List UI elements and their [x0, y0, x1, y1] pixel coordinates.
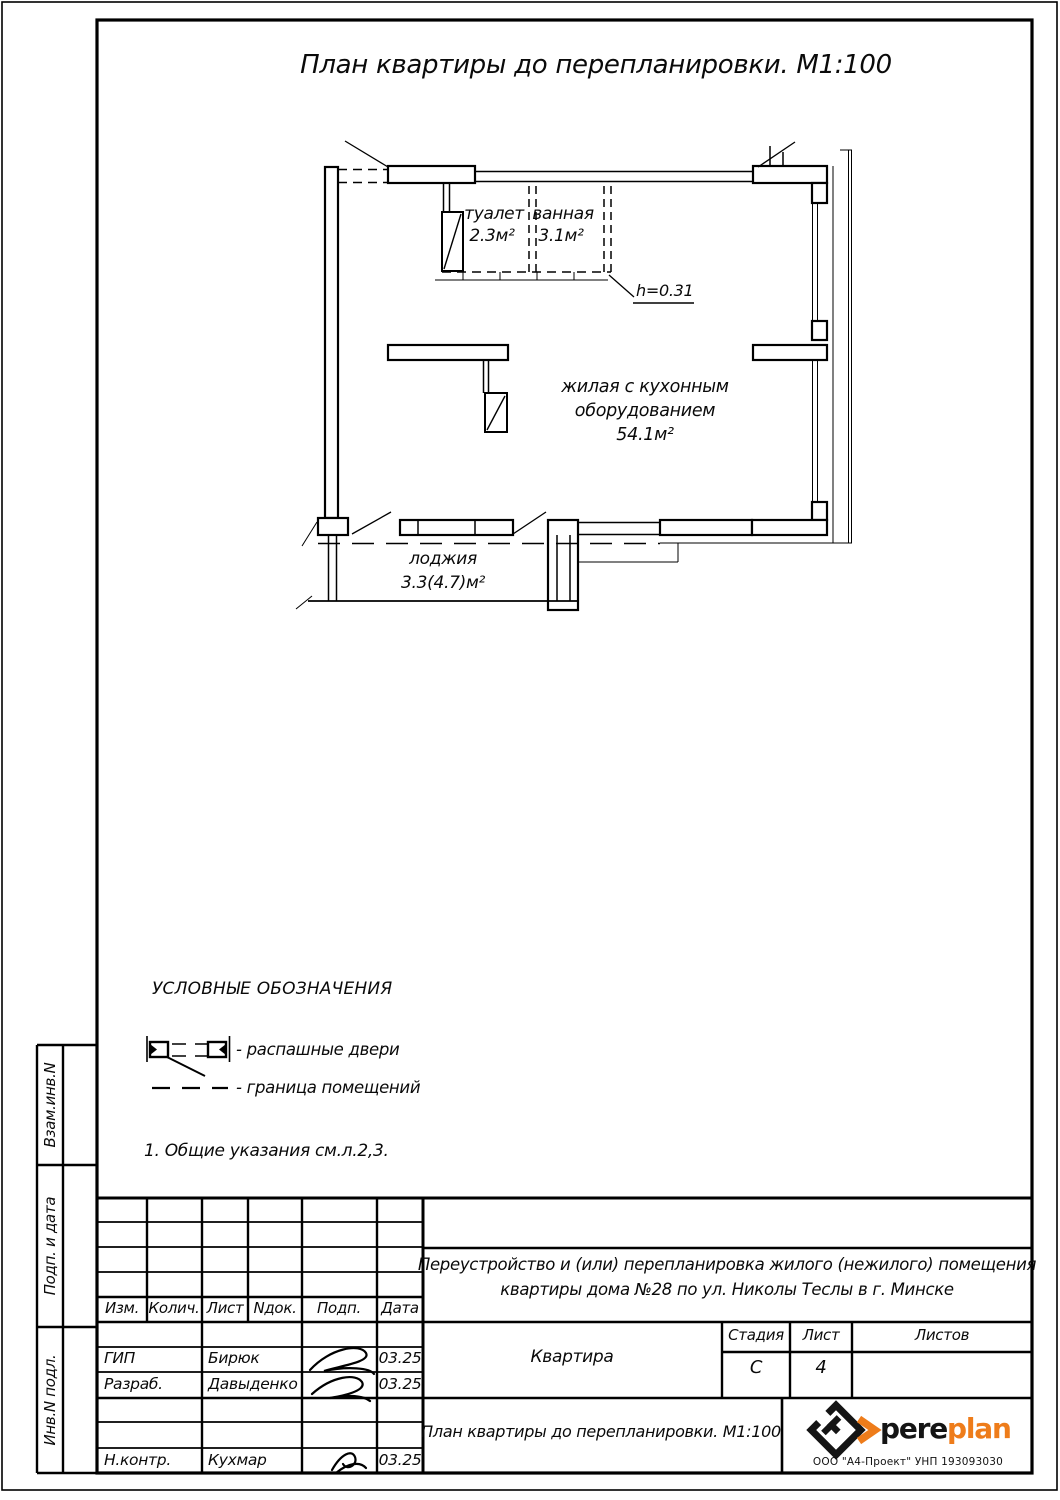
- stage-label: Стадия: [728, 1328, 784, 1344]
- sheet-title: План квартиры до перепланировки. М1:100: [300, 52, 892, 79]
- legend-title: УСЛОВНЫЕ ОБОЗНАЧЕНИЯ: [152, 981, 392, 999]
- drawing-linework: [0, 0, 1060, 1500]
- stage-value: С: [750, 1359, 762, 1378]
- room-label-loggia: лоджия: [409, 551, 477, 569]
- sidebar-label-podp-data: Подп. и дата: [43, 1197, 59, 1296]
- drawing-title: План квартиры до перепланировки. М1:100: [421, 1424, 781, 1441]
- room-area-loggia: 3.3(4.7)м²: [401, 575, 485, 593]
- signature-nkontr: [332, 1453, 366, 1473]
- project-name-line2: квартиры дома №28 по ул. Николы Теслы в …: [500, 1281, 954, 1298]
- staff-name: Кухмар: [208, 1452, 267, 1468]
- door-swings: [345, 141, 795, 534]
- staff-role: Разраб.: [104, 1376, 163, 1392]
- staff-date: 03.25: [379, 1452, 422, 1468]
- sheets-label: Листов: [915, 1328, 969, 1344]
- sidebar-label-inv-podl: Инв.N подл.: [43, 1354, 59, 1445]
- room-area-bath: 3.1м²: [538, 228, 583, 246]
- staff-date: 03.25: [379, 1376, 422, 1392]
- room-label-living-line2: оборудованием: [575, 402, 715, 420]
- room-label-toilet: туалет: [464, 206, 524, 224]
- tb-column-podp: Подп.: [317, 1301, 361, 1317]
- tb-column-list: Лист: [207, 1301, 244, 1317]
- room-label-living-line1: жилая с кухонным: [561, 378, 728, 396]
- sheet-label: Лист: [803, 1328, 840, 1344]
- room-area-living: 54.1м²: [616, 426, 673, 444]
- pereplan-logo-icon: [807, 1401, 875, 1454]
- room-label-bath: ванная: [532, 206, 594, 224]
- staff-date: 03.25: [379, 1350, 422, 1366]
- logo-wordmark: pereplan: [880, 1412, 1011, 1445]
- object-name: Квартира: [530, 1349, 613, 1367]
- legend-boundary-label: - граница помещений: [236, 1079, 420, 1096]
- sidebar-label-vzam-inv: Взам.инв.N: [43, 1063, 59, 1148]
- legend-door-label: - распашные двери: [236, 1041, 399, 1058]
- logo-text-pere: pere: [880, 1412, 947, 1445]
- legend-door-symbol: [147, 1036, 230, 1076]
- tb-column-izm: Изм.: [105, 1301, 139, 1317]
- tb-column-kolich: Колич.: [149, 1301, 200, 1317]
- height-annotation: h=0.31: [636, 283, 693, 300]
- signatures: [310, 1348, 374, 1473]
- project-name-line1: Переустройство и (или) перепланировка жи…: [418, 1256, 1036, 1273]
- room-area-toilet: 2.3м²: [469, 228, 514, 246]
- staff-name: Бирюк: [208, 1350, 259, 1366]
- staff-name: Давыденко: [208, 1376, 298, 1392]
- logo-text-plan: plan: [947, 1412, 1011, 1445]
- height-leader-line: [609, 275, 634, 297]
- tb-column-data: Дата: [381, 1301, 419, 1317]
- staff-role: ГИП: [104, 1350, 135, 1366]
- drawing-sheet: План квартиры до перепланировки. М1:100 …: [0, 0, 1060, 1500]
- general-note: 1. Общие указания см.л.2,3.: [144, 1143, 389, 1161]
- sheet-number-value: 4: [815, 1359, 826, 1378]
- signature-gip: [310, 1348, 374, 1374]
- company-name: ООО "А4-Проект" УНП 193093030: [813, 1456, 1003, 1468]
- tb-column-ndok: Nдок.: [253, 1301, 296, 1317]
- staff-role: Н.контр.: [104, 1452, 171, 1468]
